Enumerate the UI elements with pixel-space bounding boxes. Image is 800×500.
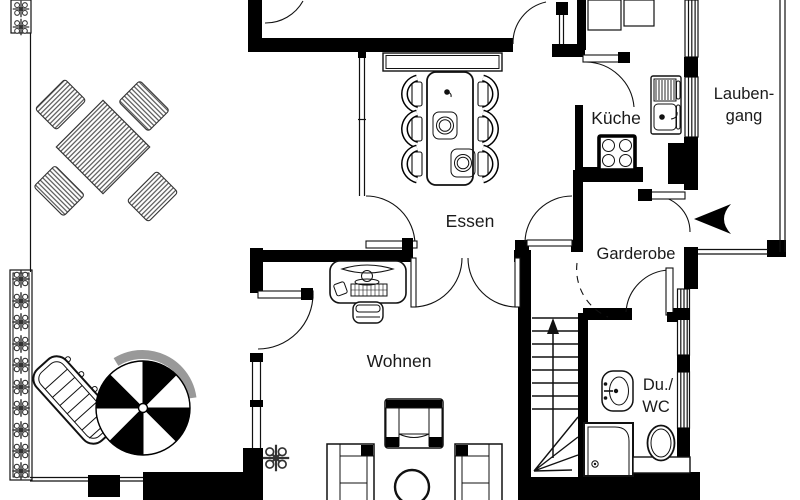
floor-plan-svg: Essen Küche Lauben- gang Garderobe Wohne…: [0, 0, 800, 500]
toilet: [648, 426, 675, 461]
room-label-kueche: Küche: [591, 108, 641, 128]
room-label-laubengang-2: gang: [726, 107, 763, 125]
room-label-wohnen: Wohnen: [367, 351, 432, 371]
room-label-duwc-1: Du./: [643, 376, 674, 394]
sofa: [327, 444, 374, 500]
room-label-duwc-2: WC: [642, 398, 670, 416]
stove: [599, 136, 635, 170]
floor-plan: Essen Küche Lauben- gang Garderobe Wohne…: [0, 0, 800, 500]
room-label-garderobe: Garderobe: [597, 245, 676, 263]
washbasin: [602, 371, 633, 411]
shower: [584, 423, 633, 476]
kitchen-sink: [651, 76, 681, 134]
room-label-essen: Essen: [446, 211, 495, 231]
room-label-laubengang-1: Lauben-: [714, 85, 775, 103]
coffee-table: [395, 470, 429, 500]
dining-table: [427, 72, 475, 185]
desk: [330, 261, 406, 303]
armchair: [385, 399, 443, 448]
sofa: [455, 444, 502, 500]
sideboard: [383, 53, 502, 71]
plant: [263, 445, 289, 471]
office-chair: [353, 302, 383, 323]
